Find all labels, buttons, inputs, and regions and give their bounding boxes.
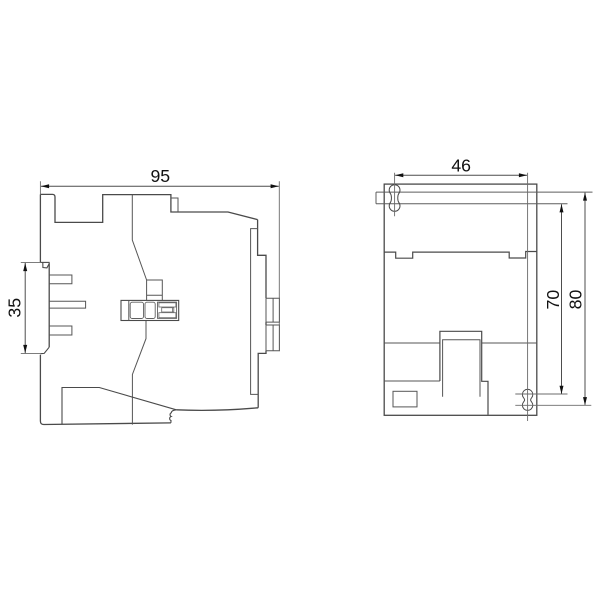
svg-text:95: 95 xyxy=(150,166,170,186)
svg-text:46: 46 xyxy=(451,155,471,175)
svg-text:70: 70 xyxy=(543,290,563,310)
svg-text:80: 80 xyxy=(565,290,585,310)
svg-text:35: 35 xyxy=(5,298,25,318)
